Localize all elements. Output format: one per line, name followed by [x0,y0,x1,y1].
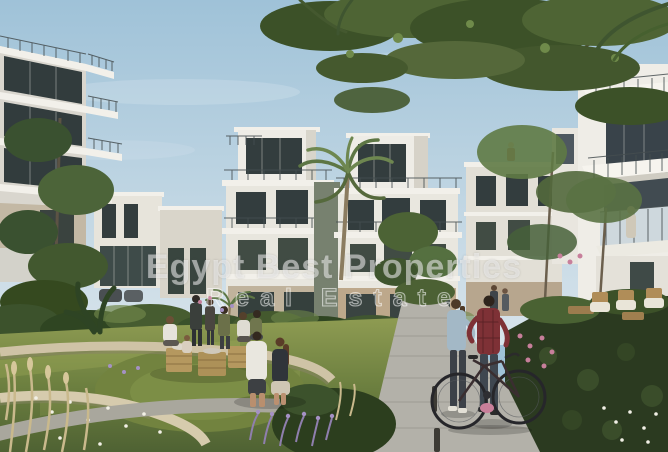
scene [0,0,668,452]
rendered-photo: Egypt Best Properties Real Estate [0,0,668,452]
building-mid-left [92,192,224,298]
